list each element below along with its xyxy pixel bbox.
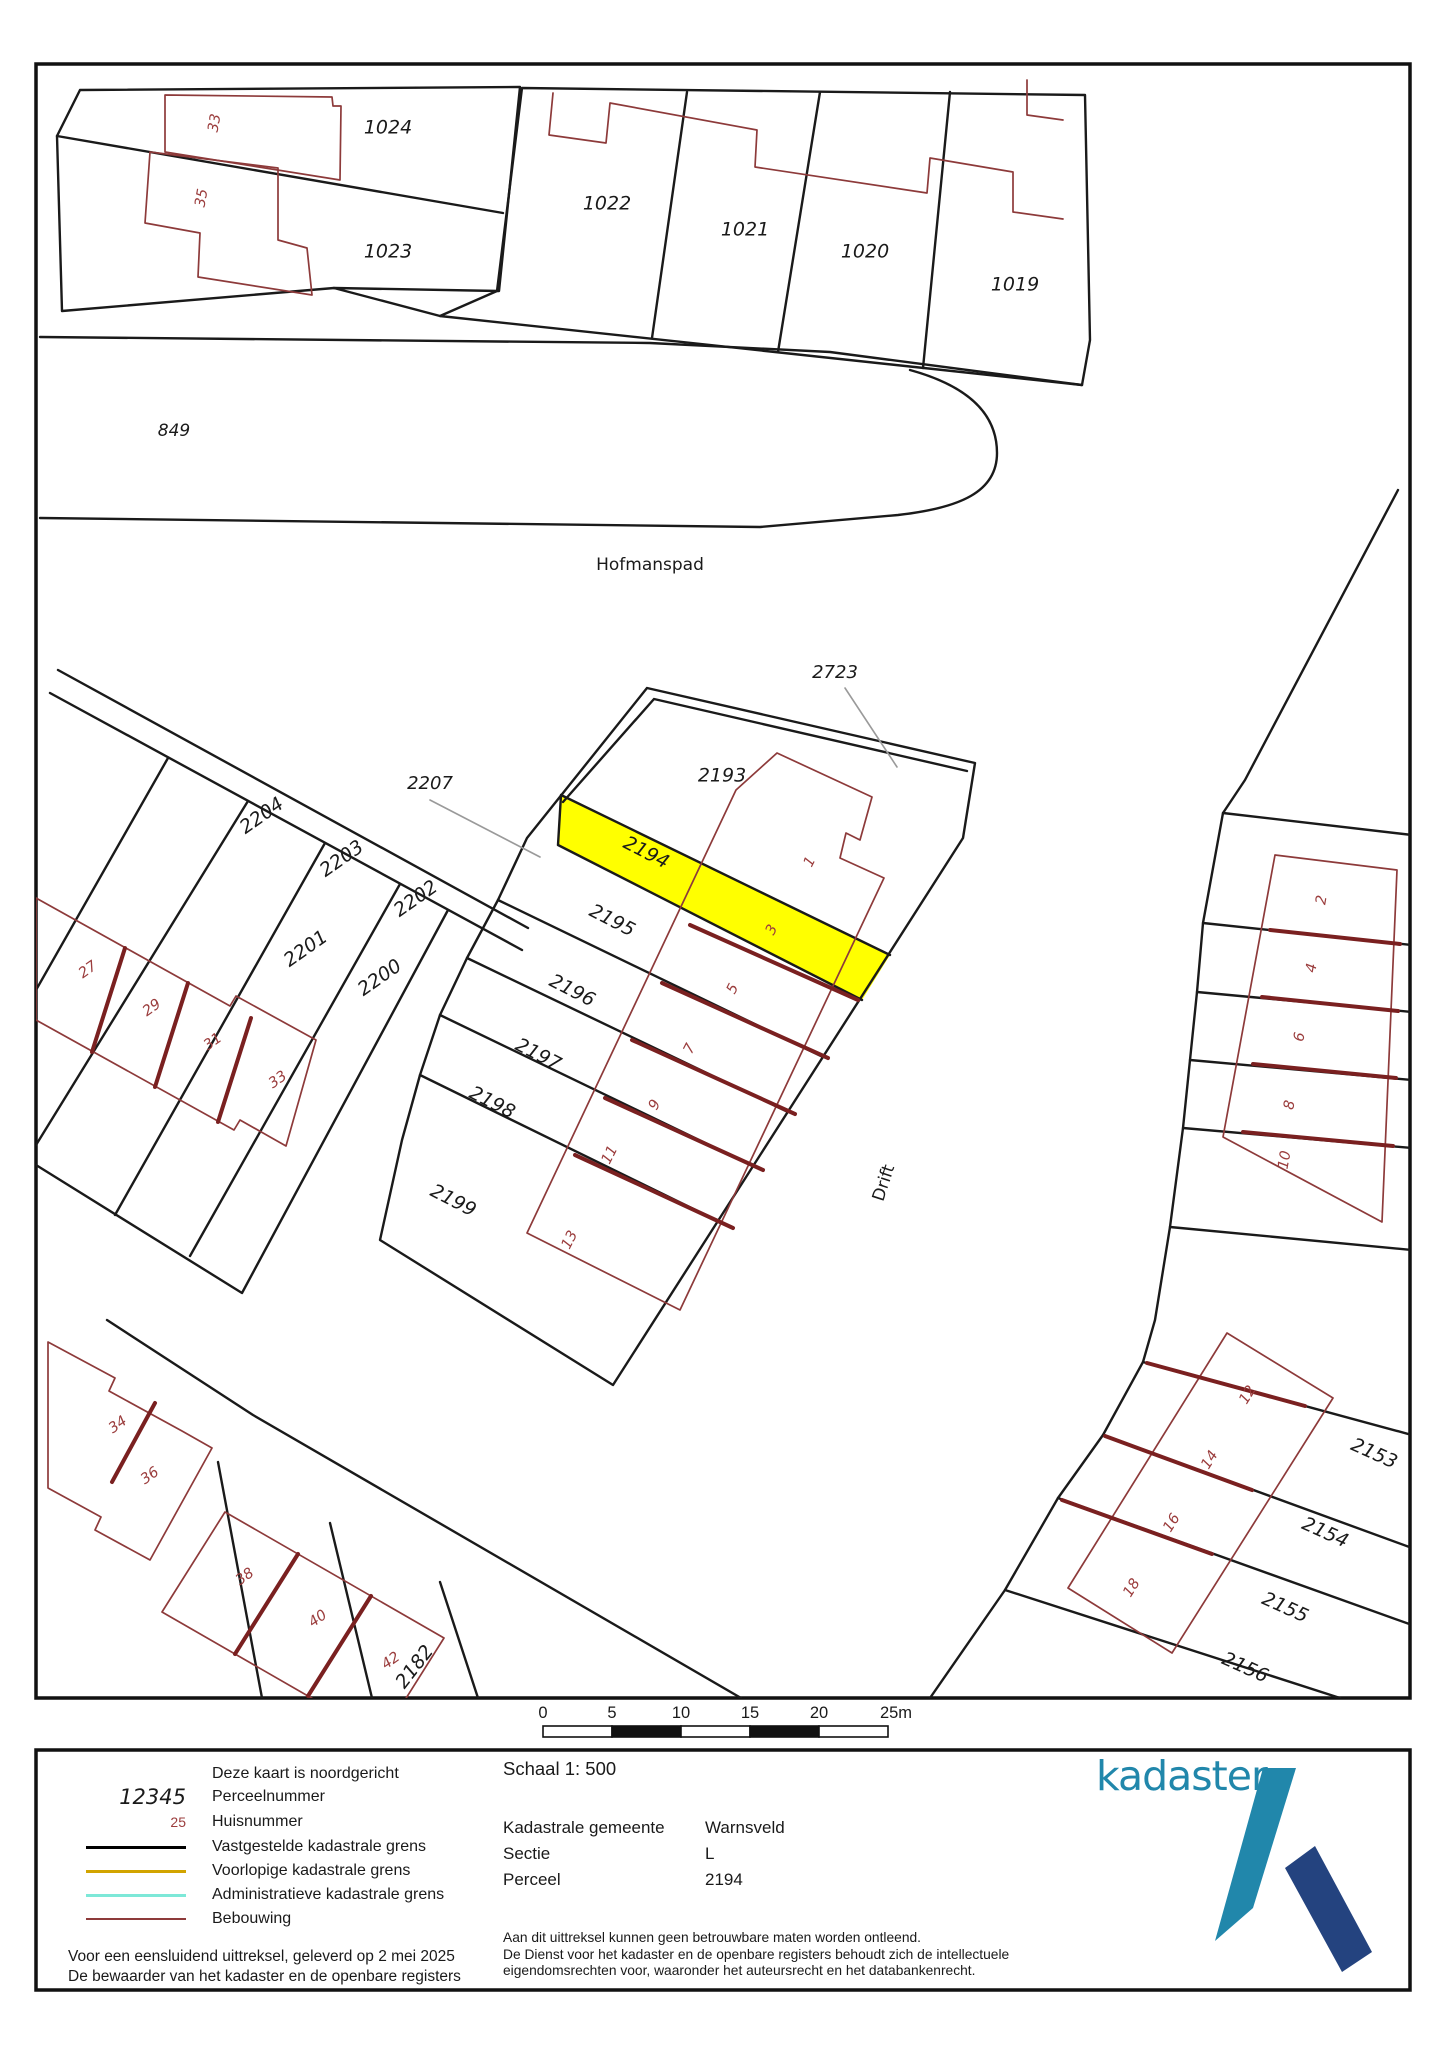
legend-sample: [68, 1870, 186, 1873]
cadastral-map: 1024102310221021102010198492723220721932…: [0, 0, 1447, 2048]
info-label: Perceel: [503, 1870, 561, 1890]
legend-sample: [68, 1846, 186, 1849]
scale-tick-25m: 25m: [880, 1704, 912, 1722]
legend-row: Bebouwing: [68, 1908, 291, 1930]
disclaimer-line: eigendomsrechten voor, waaronder het aut…: [503, 1963, 1009, 1980]
legend-row: Deze kaart is noordgericht: [68, 1763, 399, 1785]
disclaimer-line: Aan dit uittreksel kunnen geen betrouwba…: [503, 1930, 1009, 1947]
legend-row: Voorlopige kadastrale grens: [68, 1860, 410, 1882]
parcel-label-1022: 1022: [583, 193, 631, 215]
legend-row: 25Huisnummer: [68, 1811, 303, 1833]
legend-sample: 12345: [68, 1785, 186, 1809]
delivery-line-1: Voor een eensluidend uittreksel, gelever…: [68, 1948, 455, 1966]
legend-sample: [68, 1894, 186, 1897]
legend-label: Perceelnummer: [212, 1788, 325, 1806]
legend-label: Vastgestelde kadastrale grens: [212, 1838, 426, 1856]
kadaster-wordmark: kadaster: [1096, 1752, 1267, 1800]
scale-bar-segment: [612, 1726, 681, 1737]
scale-label: Schaal 1: 500: [503, 1758, 616, 1780]
legend-label: Huisnummer: [212, 1813, 303, 1831]
legend-label: Bebouwing: [212, 1910, 291, 1928]
legend-line-sample: [86, 1918, 186, 1920]
scale-tick-5: 5: [607, 1704, 616, 1722]
legend-sample: [68, 1918, 186, 1920]
scale-bar-segment: [750, 1726, 819, 1737]
info-label: Sectie: [503, 1844, 550, 1864]
kadaster-map-extract-page: 1024102310221021102010198492723220721932…: [0, 0, 1447, 2048]
street-label-Hofmanspad: Hofmanspad: [596, 555, 704, 575]
parcel-label-1024: 1024: [364, 117, 412, 139]
info-value: 2194: [705, 1870, 743, 1890]
legend-line-sample: [86, 1846, 186, 1849]
parcel-label-849: 849: [158, 421, 190, 441]
parcel-label-2723: 2723: [812, 662, 858, 683]
disclaimer: Aan dit uittreksel kunnen geen betrouwba…: [503, 1930, 1009, 1980]
parcel-label-2193: 2193: [698, 765, 746, 787]
scale-tick-10: 10: [672, 1704, 690, 1722]
legend-label: Deze kaart is noordgericht: [212, 1765, 399, 1783]
parcel-label-1019: 1019: [991, 274, 1039, 296]
legend-row: Administratieve kadastrale grens: [68, 1884, 444, 1906]
info-value: Warnsveld: [705, 1818, 785, 1838]
legend-row: 12345Perceelnummer: [68, 1786, 325, 1808]
house-number-33: 33: [206, 113, 225, 134]
house-number-35: 35: [193, 188, 212, 209]
parcel-label-1023: 1023: [364, 241, 412, 263]
parcel-label-1020: 1020: [841, 241, 889, 263]
delivery-line-2: De bewaarder van het kadaster en de open…: [68, 1968, 461, 1986]
legend-row: Vastgestelde kadastrale grens: [68, 1836, 426, 1858]
scale-tick-20: 20: [810, 1704, 828, 1722]
info-value: L: [705, 1844, 714, 1864]
scale-bar-segment: [681, 1726, 750, 1737]
legend-line-sample: [86, 1870, 186, 1873]
info-label: Kadastrale gemeente: [503, 1818, 665, 1838]
scale-bar: 0510152025m: [538, 1704, 912, 1737]
scale-bar-segment: [819, 1726, 888, 1737]
parcel-label-2207: 2207: [407, 773, 453, 794]
legend-label: Voorlopige kadastrale grens: [212, 1862, 410, 1880]
scale-tick-0: 0: [538, 1704, 547, 1722]
legend-label: Administratieve kadastrale grens: [212, 1886, 444, 1904]
scale-bar-segment: [543, 1726, 612, 1737]
legend-line-sample: [86, 1894, 186, 1897]
disclaimer-line: De Dienst voor het kadaster en de openba…: [503, 1947, 1009, 1964]
parcel-label-1021: 1021: [721, 219, 769, 241]
house-number-10: 10: [1276, 1150, 1295, 1171]
scale-tick-15: 15: [741, 1704, 759, 1722]
legend-sample: 25: [68, 1814, 186, 1830]
